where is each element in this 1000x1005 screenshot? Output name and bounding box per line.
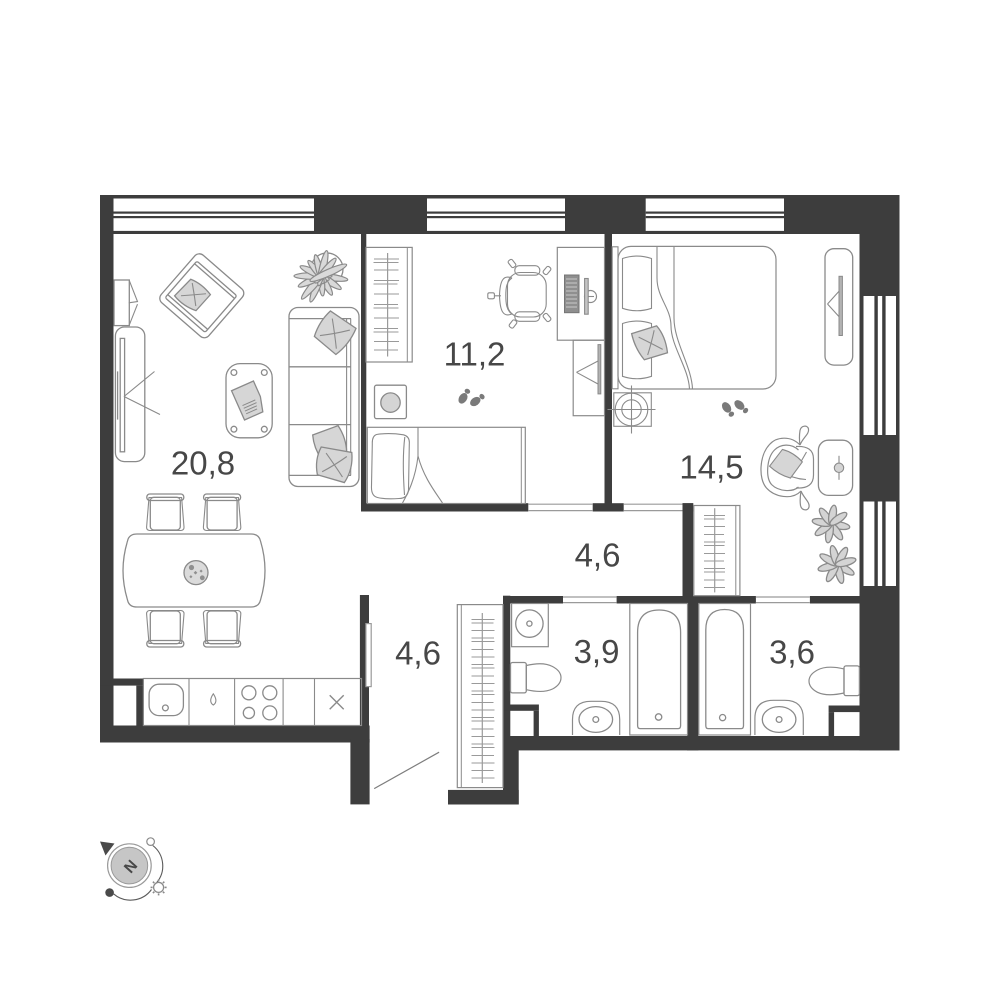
svg-text:4,6: 4,6 [575, 537, 621, 574]
svg-text:3,6: 3,6 [769, 634, 815, 671]
svg-text:3,9: 3,9 [574, 633, 620, 670]
svg-text:4,6: 4,6 [395, 635, 441, 672]
svg-text:11,2: 11,2 [444, 336, 506, 373]
svg-text:20,8: 20,8 [171, 445, 235, 482]
svg-text:14,5: 14,5 [679, 449, 743, 486]
